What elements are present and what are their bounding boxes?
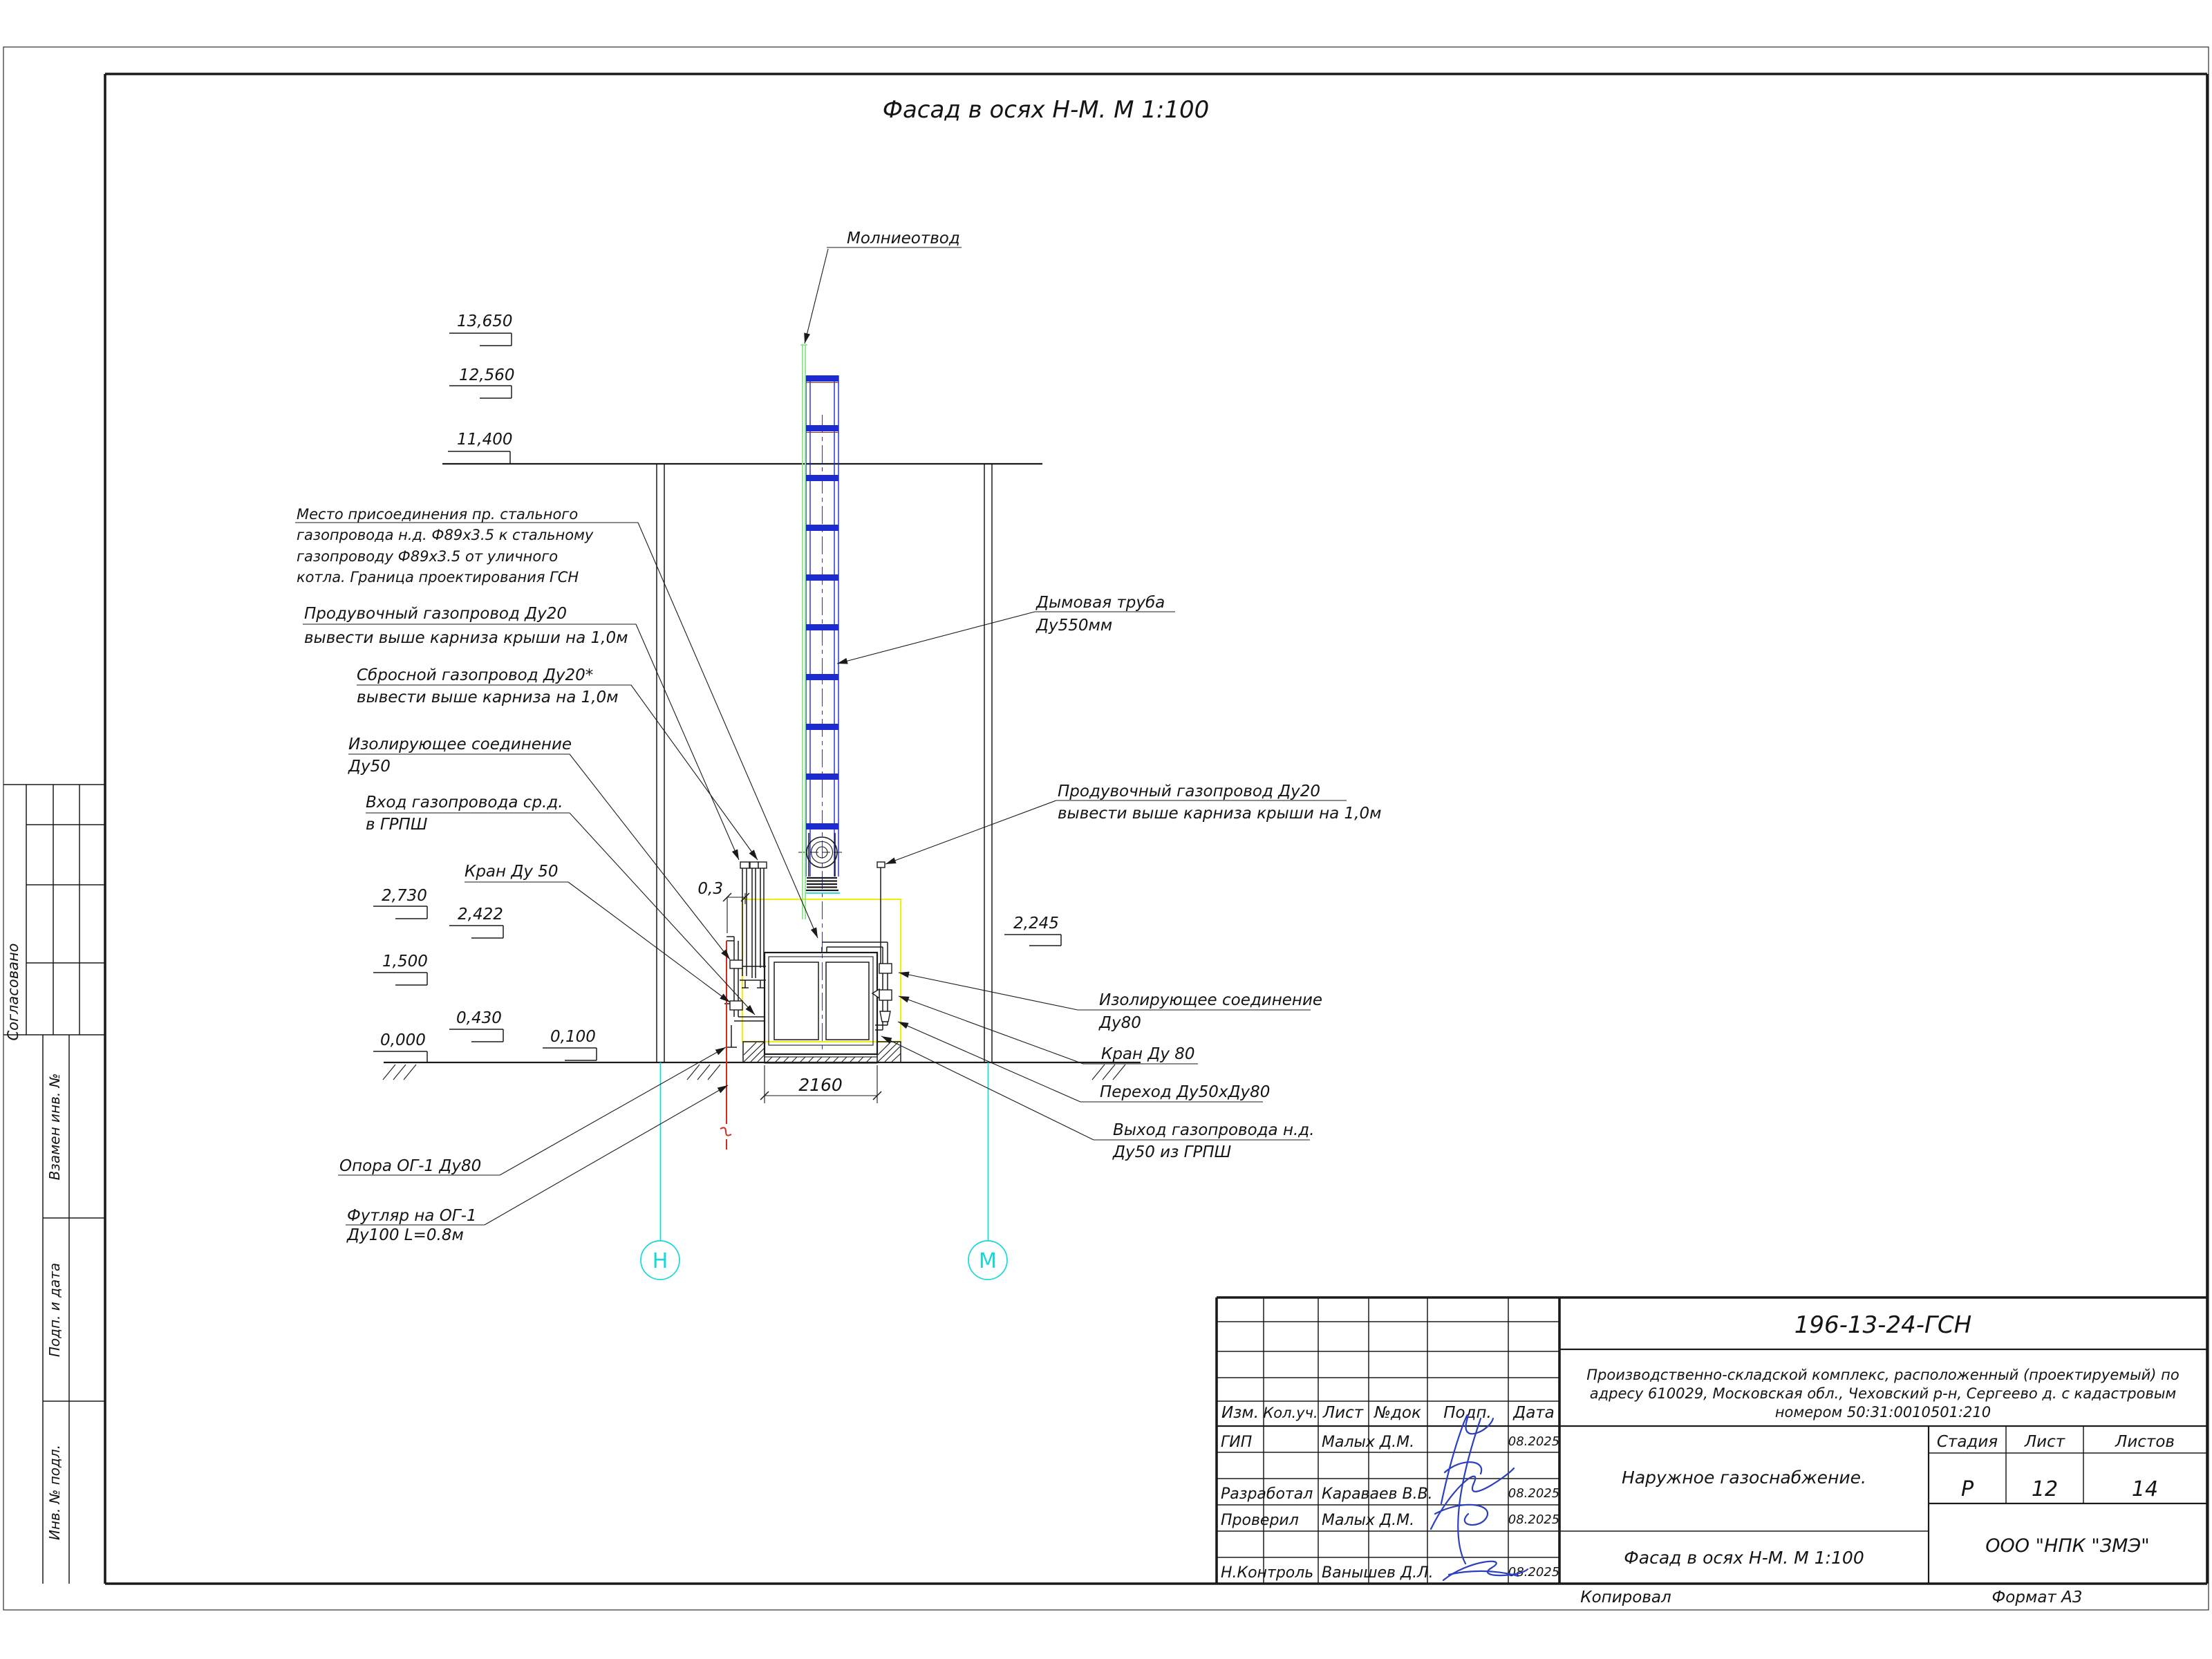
elevation-0430: 0,430 bbox=[456, 1009, 502, 1027]
title-block: Изм. Кол.уч. Лист №док Подп. Дата ГИП Ма… bbox=[1217, 1297, 2207, 1584]
elevation-11400: 11,400 bbox=[457, 431, 512, 449]
dimension-2160: 2160 bbox=[798, 1075, 843, 1095]
project-line-1: Производственно-складской комплекс, расп… bbox=[1586, 1367, 2180, 1383]
callout-casing-1: Футляр на ОГ-1 bbox=[347, 1207, 477, 1225]
copied-label: Копировал bbox=[1580, 1588, 1671, 1606]
callout-relief-2: вывести выше карниза на 1,0м bbox=[357, 688, 619, 706]
callout-insulating80-1: Изолирующее соединение bbox=[1099, 991, 1322, 1009]
callout-chimney-2: Ду550мм bbox=[1035, 617, 1112, 635]
callout-support: Опора ОГ-1 Ду80 bbox=[339, 1157, 481, 1175]
row-name-razrabotal: Караваев В.В. bbox=[1322, 1485, 1433, 1503]
callout-purge-left-2: вывести выше карниза крыши на 1,0м bbox=[304, 629, 628, 647]
object-name: Наружное газоснабжение. bbox=[1622, 1468, 1866, 1488]
dimensions: 2160 0,3 bbox=[697, 880, 881, 1103]
inlet-riser bbox=[724, 937, 765, 1047]
elevation-0000: 0,000 bbox=[380, 1031, 426, 1049]
callout-connection-2: газопровода н.д. Ф89х3.5 к стальному bbox=[297, 527, 594, 543]
elevation-0100: 0,100 bbox=[550, 1028, 596, 1046]
callout-insulating50-2: Ду50 bbox=[348, 758, 391, 776]
callout-inlet-1: Вход газопровода ср.д. bbox=[366, 794, 563, 812]
header-doc: №док bbox=[1373, 1404, 1421, 1422]
organization: ООО "НПК "ЗМЭ" bbox=[1985, 1535, 2149, 1557]
drawing-sheet: Согласовано Взамен инв. № Подп. и дата И… bbox=[0, 0, 2212, 1659]
elevation-12560: 12,560 bbox=[459, 366, 514, 384]
replace-inv-label: Взамен инв. № bbox=[46, 1074, 63, 1181]
sheet-value: 12 bbox=[2032, 1477, 2058, 1501]
callout-reducer: Переход Ду50хДу80 bbox=[1100, 1083, 1270, 1101]
project-line-2: адресу 610029, Московская обл., Чеховски… bbox=[1590, 1385, 2177, 1402]
row-date-nkontrol: 08.2025 bbox=[1508, 1565, 1559, 1580]
elevation-marks: 13,650 12,560 11,400 2,730 2,422 1,500 0… bbox=[373, 312, 1061, 1062]
callout-valve50: Кран Ду 50 bbox=[465, 863, 559, 881]
axis-label-m: М bbox=[979, 1249, 997, 1273]
elevation-1500: 1,500 bbox=[382, 953, 428, 971]
row-role-razrabotal: Разработал bbox=[1221, 1485, 1313, 1503]
approved-label: Согласовано bbox=[5, 943, 21, 1040]
dimension-0-3: 0,3 bbox=[697, 880, 723, 898]
elevation-2730: 2,730 bbox=[382, 887, 427, 905]
row-date-razrabotal: 08.2025 bbox=[1508, 1486, 1559, 1501]
elevation-2422: 2,422 bbox=[458, 906, 503, 924]
callout-insulating50-1: Изолирующее соединение bbox=[348, 735, 572, 753]
axis-marks: Н М bbox=[641, 1062, 1007, 1280]
stage-label: Стадия bbox=[1937, 1433, 1998, 1451]
project-line-3: номером 50:31:0010501:210 bbox=[1775, 1404, 1991, 1421]
row-name-nkontrol: Ванышев Д.Л. bbox=[1322, 1564, 1434, 1582]
underground-gas-pipe bbox=[720, 941, 731, 1150]
callout-connection-1: Место присоединения пр. стального bbox=[297, 506, 578, 523]
row-role-gip: ГИП bbox=[1221, 1434, 1252, 1451]
callout-connection-4: котла. Граница проектирования ГСН bbox=[297, 569, 579, 585]
row-role-proveril: Проверил bbox=[1221, 1512, 1299, 1529]
row-role-nkontrol: Н.Контроль bbox=[1221, 1564, 1313, 1582]
callout-valve80: Кран Ду 80 bbox=[1101, 1045, 1195, 1063]
header-kol: Кол.уч. bbox=[1263, 1405, 1318, 1421]
callout-purge-left-1: Продувочный газопровод Ду20 bbox=[304, 605, 567, 623]
sign-date-label: Подп. и дата bbox=[46, 1263, 63, 1357]
callout-relief-1: Сбросной газопровод Ду20* bbox=[357, 666, 593, 684]
blowoff-pipes-left bbox=[740, 862, 767, 988]
row-date-gip: 08.2025 bbox=[1508, 1434, 1559, 1449]
sheet-label: Лист bbox=[2024, 1433, 2065, 1451]
header-izm: Изм. bbox=[1221, 1404, 1259, 1422]
approval-sidebar: Согласовано Взамен инв. № Подп. и дата И… bbox=[3, 785, 105, 1584]
format-label: Формат А3 bbox=[1992, 1588, 2083, 1606]
callout-inlet-2: в ГРПШ bbox=[366, 816, 427, 834]
sheets-value: 14 bbox=[2132, 1477, 2158, 1501]
callout-outlet-2: Ду50 из ГРПШ bbox=[1112, 1143, 1231, 1161]
callout-casing-2: Ду100 L=0.8м bbox=[346, 1226, 464, 1244]
elevation-2245: 2,245 bbox=[1013, 915, 1059, 932]
axis-label-n: Н bbox=[653, 1249, 668, 1273]
row-name-proveril: Малых Д.М. bbox=[1322, 1512, 1414, 1529]
stage-value: Р bbox=[1961, 1477, 1974, 1501]
ground-hatch bbox=[383, 1065, 1125, 1080]
callout-purge-right-2: вывести выше карниза крыши на 1,0м bbox=[1058, 805, 1381, 823]
drawing-canvas: Согласовано Взамен инв. № Подп. и дата И… bbox=[0, 0, 2212, 1659]
callout-insulating80-2: Ду80 bbox=[1098, 1014, 1141, 1032]
grpsh-cabinet bbox=[765, 953, 877, 1054]
elevation-13650: 13,650 bbox=[457, 312, 512, 330]
row-name-gip: Малых Д.М. bbox=[1322, 1434, 1414, 1451]
view-title: Фасад в осях Н-М. М 1:100 bbox=[883, 96, 1210, 124]
callout-lightning: Молниеотвод bbox=[847, 229, 960, 247]
inv-orig-label: Инв. № подл. bbox=[46, 1445, 63, 1540]
callout-purge-right-1: Продувочный газопровод Ду20 bbox=[1058, 782, 1320, 800]
header-list: Лист bbox=[1322, 1404, 1364, 1422]
callout-outlet-1: Выход газопровода н.д. bbox=[1113, 1121, 1315, 1139]
footer-labels: Копировал Формат А3 bbox=[1580, 1588, 2082, 1606]
callout-connection-3: газопроводу Ф89х3.5 от уличного bbox=[297, 548, 558, 565]
sheets-label: Листов bbox=[2115, 1433, 2175, 1451]
doc-number: 196-13-24-ГСН bbox=[1794, 1311, 1971, 1339]
callout-chimney-1: Дымовая труба bbox=[1035, 594, 1165, 612]
row-date-proveril: 08.2025 bbox=[1508, 1512, 1559, 1527]
header-date: Дата bbox=[1512, 1404, 1555, 1422]
drawing-name: Фасад в осях Н-М. М 1:100 bbox=[1624, 1548, 1864, 1568]
